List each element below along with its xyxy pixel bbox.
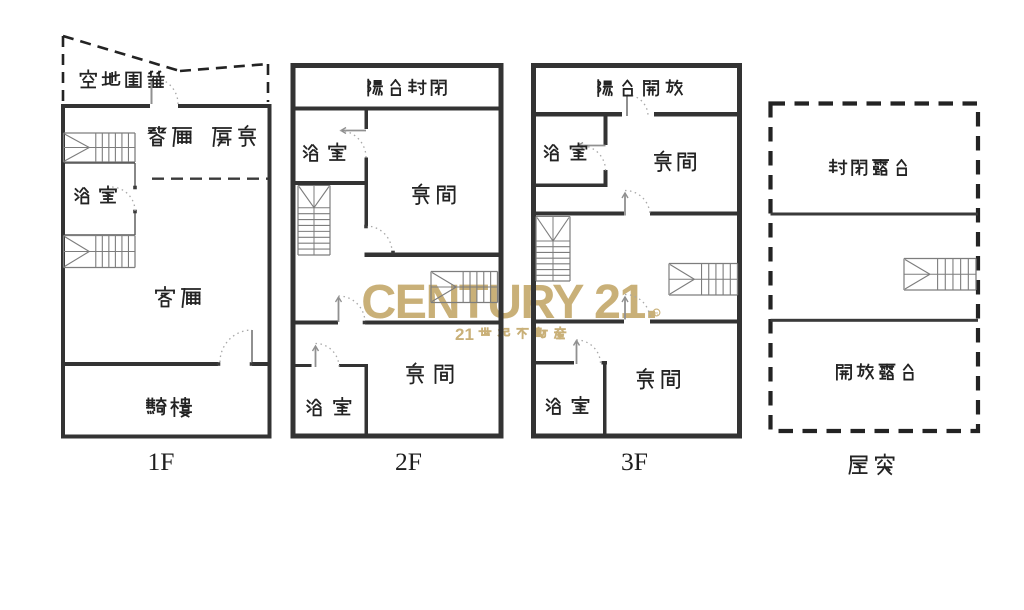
svg-text:3F: 3F bbox=[621, 447, 648, 476]
svg-text:21: 21 bbox=[455, 325, 474, 344]
svg-text:1F: 1F bbox=[148, 447, 175, 476]
svg-text:2F: 2F bbox=[395, 447, 422, 476]
